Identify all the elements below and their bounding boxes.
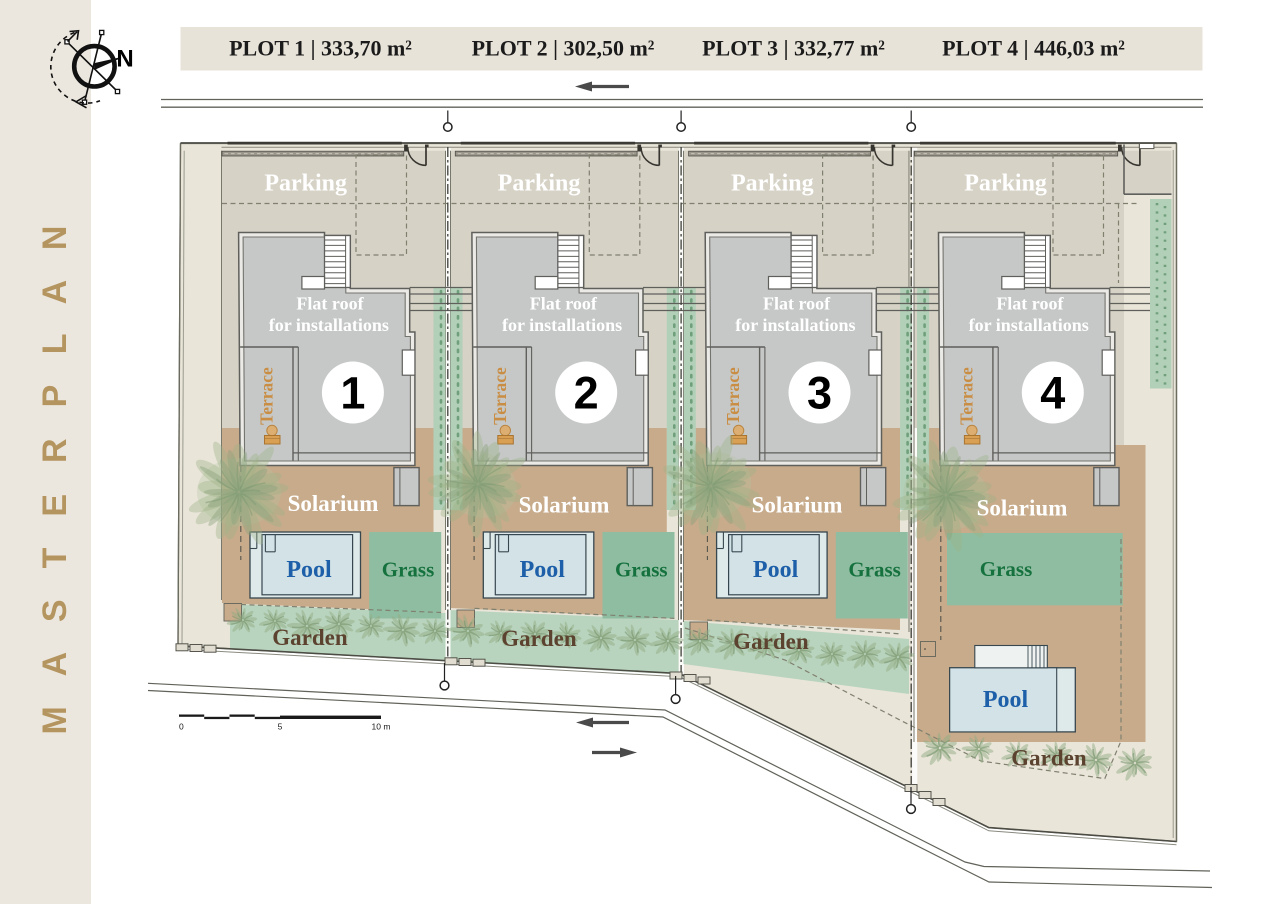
svg-text:Garden: Garden [272, 625, 348, 650]
svg-text:Terrace: Terrace [490, 367, 510, 425]
svg-text:0: 0 [179, 722, 184, 732]
svg-text:PLOT 4 | 446,03 m²: PLOT 4 | 446,03 m² [942, 36, 1125, 61]
svg-text:Pool: Pool [286, 557, 332, 583]
svg-text:for installations: for installations [735, 315, 855, 335]
svg-text:Solarium: Solarium [977, 496, 1068, 521]
svg-text:Solarium: Solarium [752, 493, 843, 518]
svg-text:Garden: Garden [733, 629, 809, 654]
svg-text:Pool: Pool [753, 557, 799, 583]
svg-text:Grass: Grass [980, 557, 1033, 581]
svg-text:Grass: Grass [615, 558, 668, 582]
svg-text:for installations: for installations [269, 315, 389, 335]
svg-text:M A S T E R P L A N: M A S T E R P L A N [36, 226, 74, 735]
svg-text:4: 4 [1040, 368, 1065, 419]
svg-text:Garden: Garden [1011, 746, 1087, 771]
svg-text:Parking: Parking [964, 171, 1047, 197]
svg-text:10 m: 10 m [372, 722, 391, 732]
svg-text:Flat roof: Flat roof [996, 294, 1064, 314]
svg-text:Pool: Pool [520, 557, 566, 583]
svg-text:for installations: for installations [969, 315, 1089, 335]
svg-text:Flat roof: Flat roof [763, 294, 831, 314]
svg-text:N: N [116, 45, 133, 72]
svg-text:Garden: Garden [501, 626, 577, 651]
svg-text:PLOT 2 | 302,50 m²: PLOT 2 | 302,50 m² [472, 36, 655, 61]
svg-text:Flat roof: Flat roof [530, 294, 598, 314]
svg-text:Solarium: Solarium [519, 493, 610, 518]
svg-text:PLOT 3 | 332,77 m²: PLOT 3 | 332,77 m² [702, 36, 885, 61]
svg-text:PLOT 1 | 333,70 m²: PLOT 1 | 333,70 m² [229, 36, 412, 61]
svg-text:Flat roof: Flat roof [296, 294, 364, 314]
svg-text:5: 5 [278, 722, 283, 732]
svg-text:Solarium: Solarium [288, 491, 379, 516]
svg-text:Parking: Parking [264, 171, 347, 197]
svg-text:Parking: Parking [731, 171, 814, 197]
svg-text:3: 3 [807, 368, 832, 419]
svg-text:for installations: for installations [502, 315, 622, 335]
svg-text:Terrace: Terrace [723, 367, 743, 425]
svg-text:Terrace: Terrace [956, 367, 976, 425]
svg-text:Grass: Grass [382, 558, 435, 582]
svg-text:Parking: Parking [498, 171, 581, 197]
svg-text:Pool: Pool [983, 687, 1029, 713]
svg-text:Grass: Grass [848, 558, 901, 582]
svg-text:1: 1 [340, 368, 365, 419]
svg-text:Terrace: Terrace [257, 367, 277, 425]
svg-text:2: 2 [574, 368, 599, 419]
